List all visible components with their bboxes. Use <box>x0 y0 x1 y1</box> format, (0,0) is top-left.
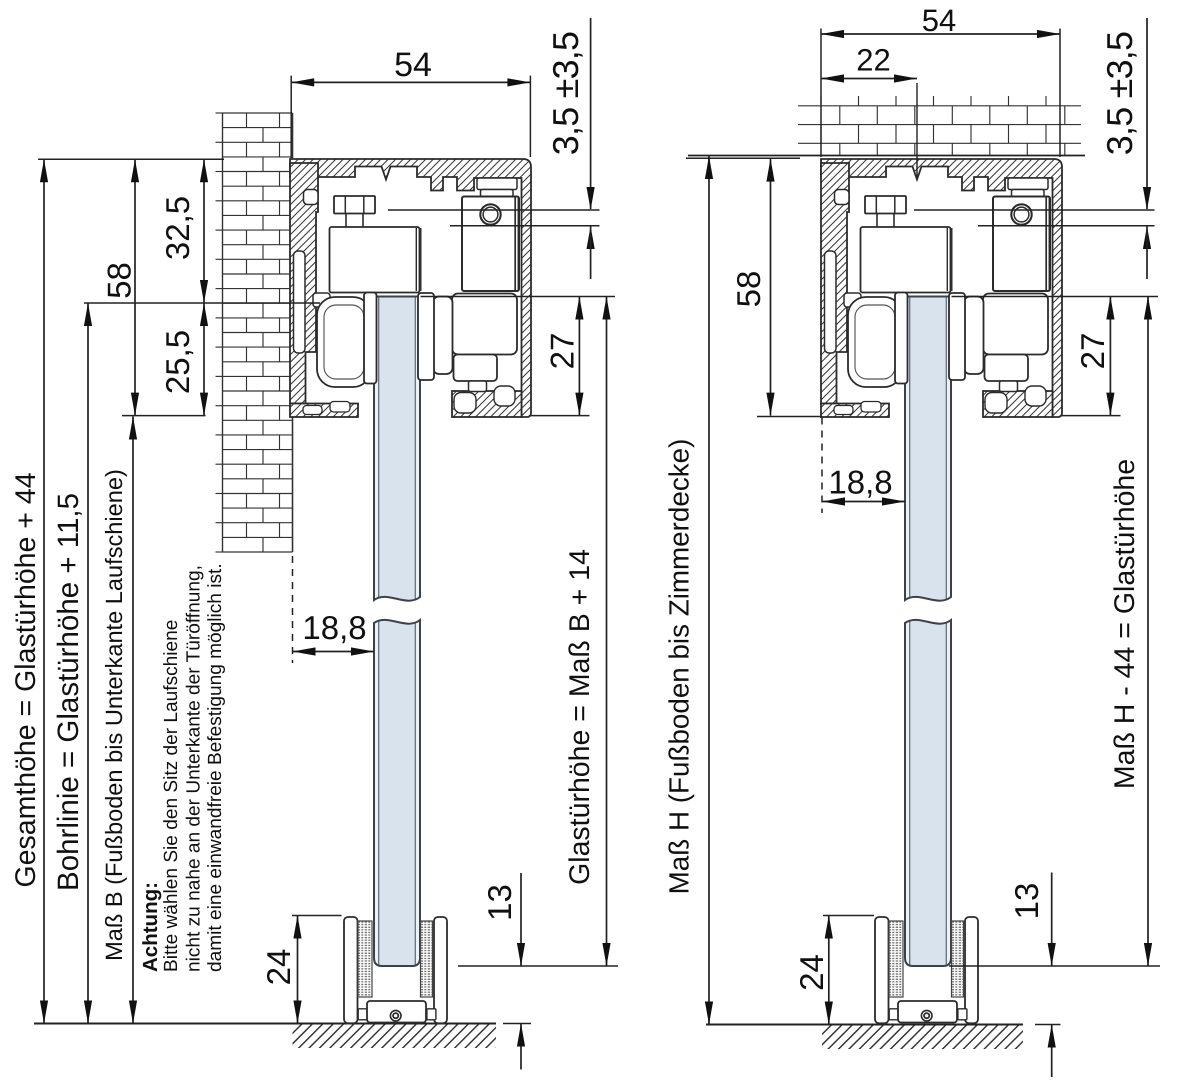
svg-text:18,8: 18,8 <box>828 464 892 501</box>
svg-text:54: 54 <box>922 3 956 38</box>
svg-text:nicht zu nahe an der Unterkant: nicht zu nahe an der Unterkante der Türö… <box>184 565 205 972</box>
svg-text:3,5 ±3,5: 3,5 ±3,5 <box>545 32 586 155</box>
svg-text:Glastürhöhe = Maß B + 14: Glastürhöhe = Maß B + 14 <box>564 549 596 885</box>
svg-text:Maß H (Fußboden bis Zimmerdeck: Maß H (Fußboden bis Zimmerdecke) <box>664 439 695 895</box>
svg-text:32,5: 32,5 <box>159 196 196 260</box>
svg-text:27: 27 <box>1074 333 1111 370</box>
svg-text:13: 13 <box>481 884 518 921</box>
svg-text:Gesamthöhe = Glastürhöhe + 44: Gesamthöhe = Glastürhöhe + 44 <box>10 472 42 887</box>
svg-text:Achtung:: Achtung: <box>139 882 162 972</box>
svg-text:Bohrlinie = Glastürhöhe + 11,5: Bohrlinie = Glastürhöhe + 11,5 <box>52 493 85 891</box>
svg-text:58: 58 <box>730 271 767 308</box>
svg-text:Maß B (Fußboden bis Unterkante: Maß B (Fußboden bis Unterkante Laufschie… <box>102 469 128 961</box>
svg-text:54: 54 <box>394 46 432 84</box>
svg-text:18,8: 18,8 <box>302 609 366 646</box>
svg-text:22: 22 <box>856 43 890 78</box>
svg-text:Maß H - 44 = Glastürhöhe: Maß H - 44 = Glastürhöhe <box>1109 459 1141 789</box>
svg-text:Bitte wählen Sie den Sitz der: Bitte wählen Sie den Sitz der Laufschien… <box>161 620 182 972</box>
svg-text:damit eine einwandfreie Befest: damit eine einwandfreie Befestigung mögl… <box>205 563 226 972</box>
svg-text:27: 27 <box>544 333 581 370</box>
svg-text:24: 24 <box>260 949 297 986</box>
svg-text:3,5 ±3,5: 3,5 ±3,5 <box>1099 32 1140 155</box>
svg-text:24: 24 <box>793 954 830 991</box>
svg-text:58: 58 <box>101 262 138 299</box>
svg-text:25,5: 25,5 <box>159 330 196 394</box>
svg-text:13: 13 <box>1008 883 1045 920</box>
